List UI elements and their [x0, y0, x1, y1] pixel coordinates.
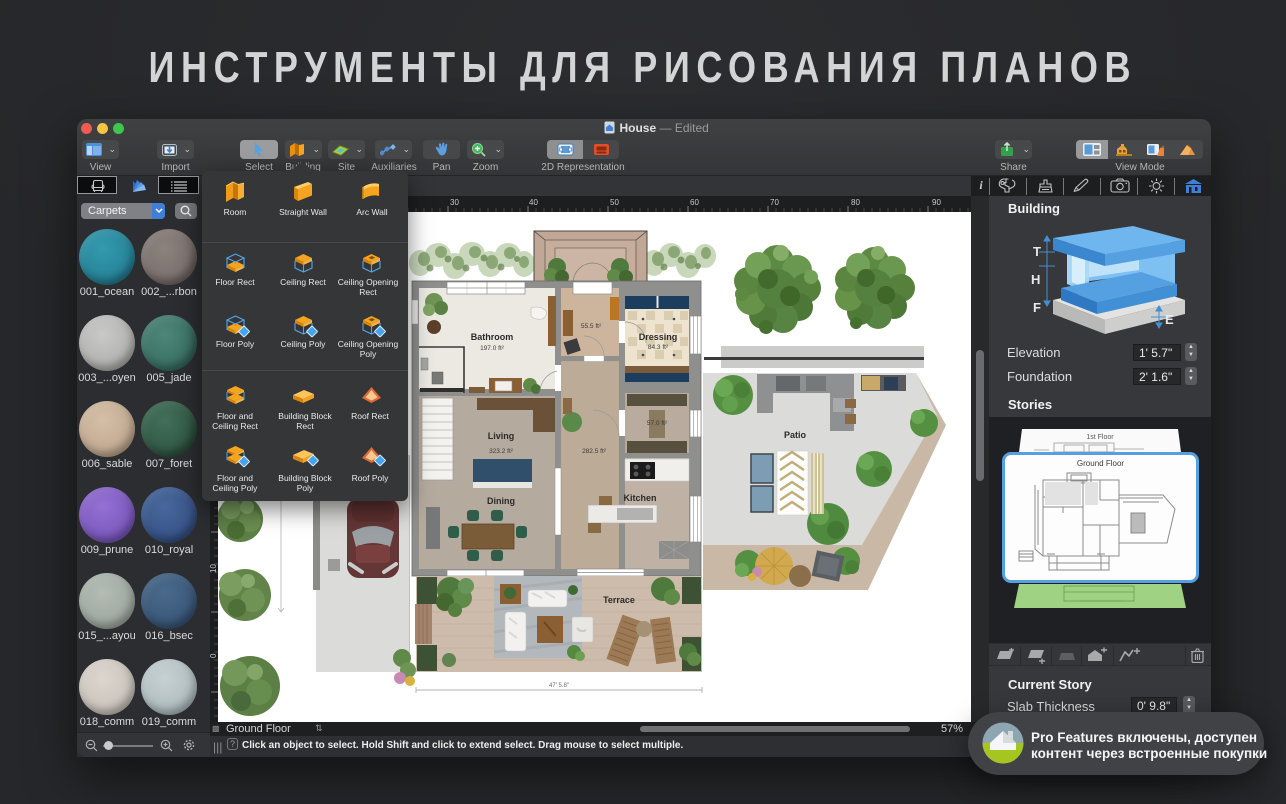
svg-text:Terrace: Terrace: [603, 595, 635, 605]
svg-text:40: 40: [529, 198, 538, 207]
svg-text:70: 70: [770, 198, 779, 207]
svg-text:Dining: Dining: [487, 496, 515, 506]
svg-text:Bathroom: Bathroom: [471, 332, 514, 342]
svg-text:E: E: [1165, 312, 1174, 327]
svg-text:60: 60: [690, 198, 699, 207]
svg-text:80: 80: [851, 198, 860, 207]
svg-text:Living: Living: [488, 431, 515, 441]
svg-text:90: 90: [932, 198, 941, 207]
svg-text:Patio: Patio: [784, 430, 807, 440]
svg-text:197.0 ft²: 197.0 ft²: [480, 345, 505, 352]
svg-text:H: H: [1031, 272, 1040, 287]
svg-text:F: F: [1033, 300, 1041, 315]
svg-text:50: 50: [610, 198, 619, 207]
svg-text:323.2 ft²: 323.2 ft²: [489, 448, 514, 455]
svg-text:Dressing: Dressing: [639, 332, 678, 342]
svg-text:1st Floor: 1st Floor: [1086, 434, 1114, 441]
svg-text:0: 0: [210, 653, 218, 658]
svg-text:Kitchen: Kitchen: [623, 493, 656, 503]
svg-text:30: 30: [450, 198, 459, 207]
svg-text:47' 5.8": 47' 5.8": [549, 683, 569, 689]
svg-text:T: T: [1033, 244, 1041, 259]
svg-text:57.0 ft²: 57.0 ft²: [647, 420, 668, 427]
svg-text:84.3 ft²: 84.3 ft²: [648, 344, 669, 351]
svg-text:282.5 ft²: 282.5 ft²: [582, 448, 607, 455]
svg-text:10: 10: [210, 564, 218, 573]
svg-text:55.5 ft²: 55.5 ft²: [581, 323, 602, 330]
